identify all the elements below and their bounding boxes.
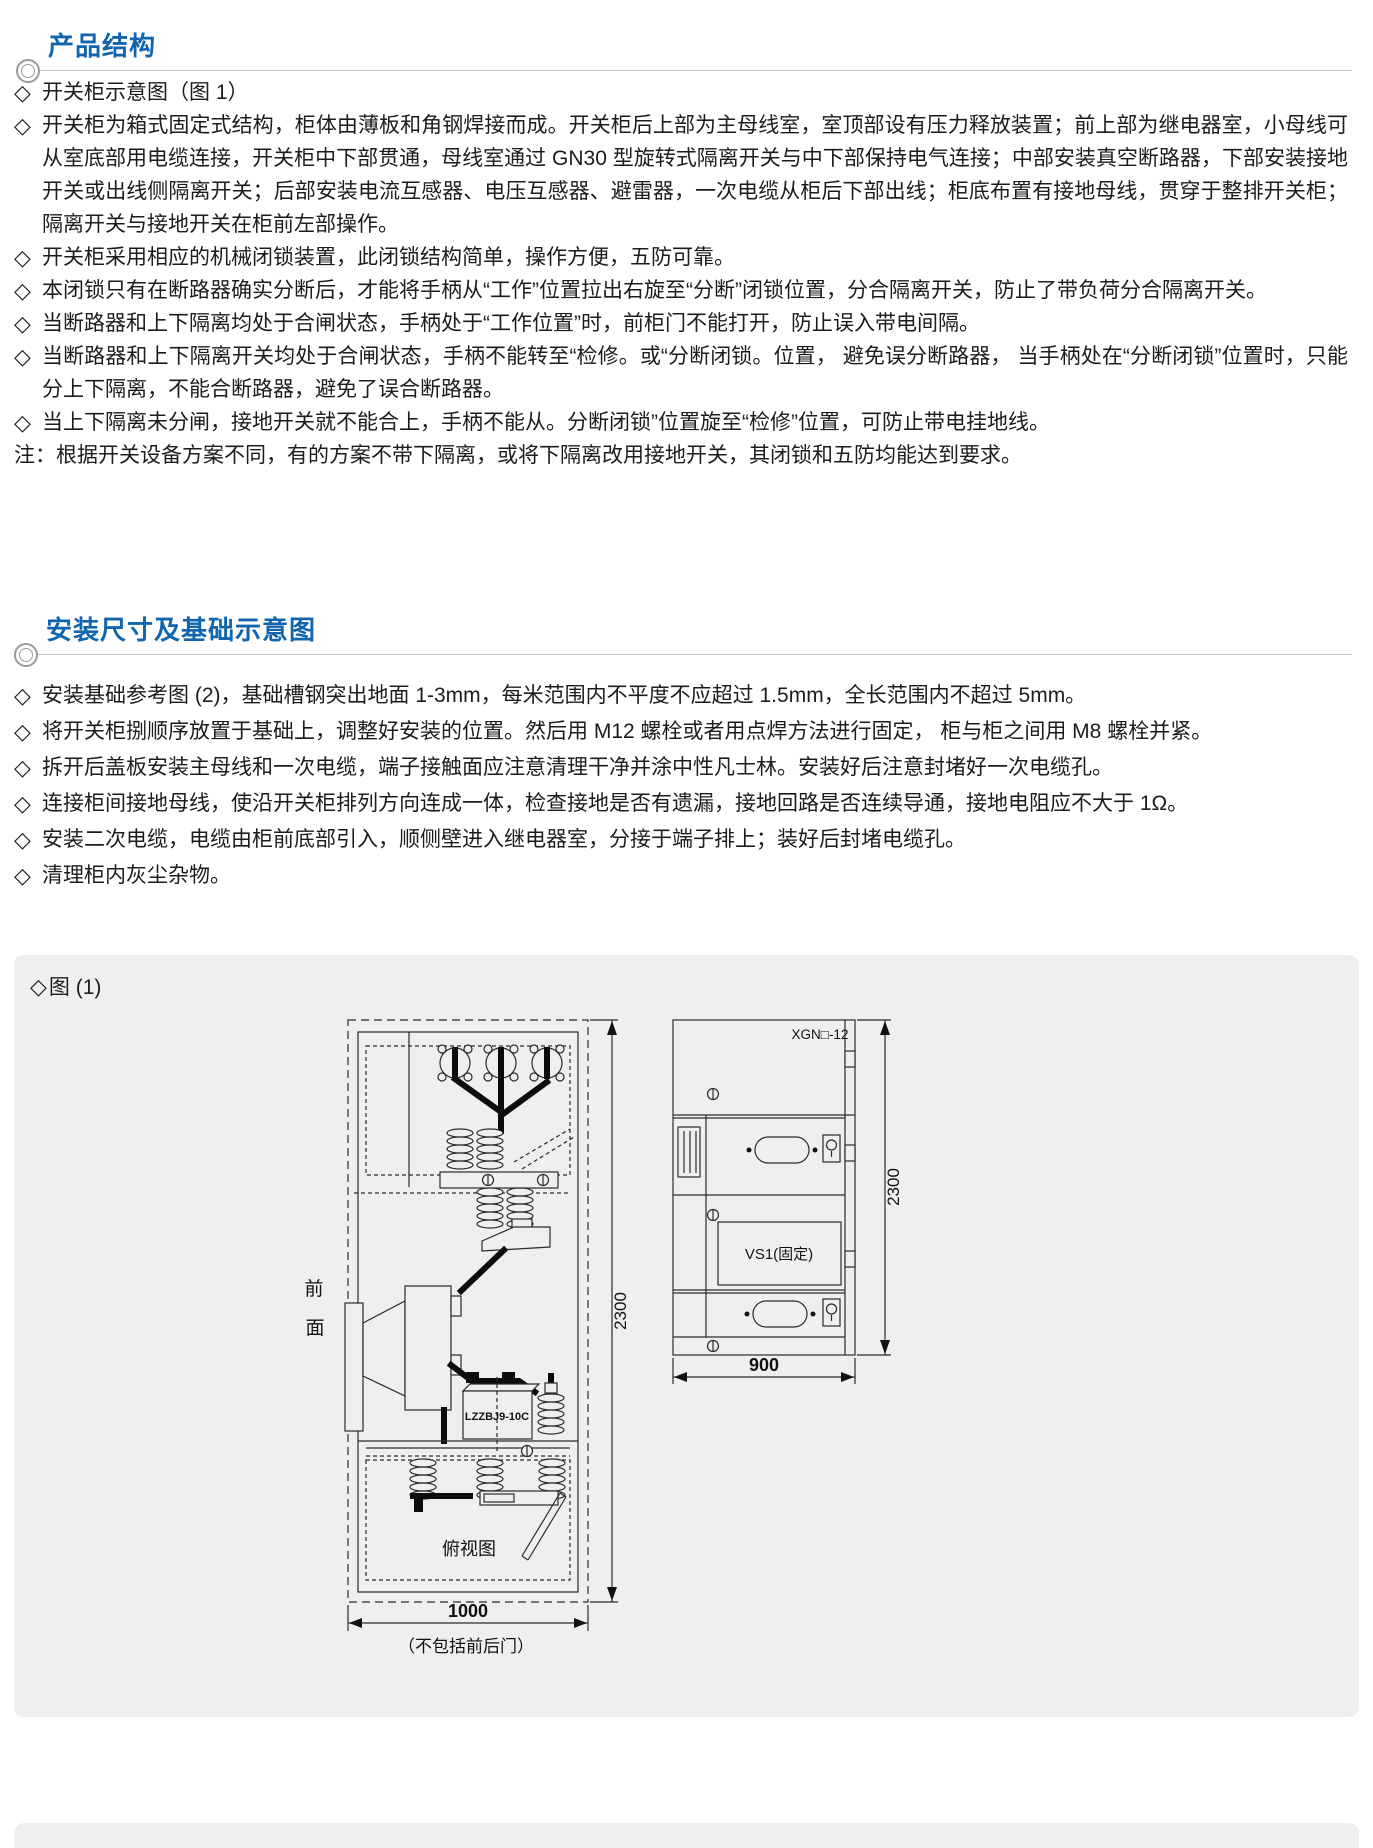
diamond-icon: ◇ [14, 822, 31, 858]
bullet-item: ◇安装基础参考图 (2)，基础槽钢突出地面 1-3mm，每米范围内不平度不应超过… [14, 678, 1348, 714]
ring-icon [14, 643, 38, 667]
bullet-item: ◇将开关柜捌顺序放置于基础上，调整好安装的位置。然后用 M12 螺栓或者用点焊方… [14, 714, 1348, 750]
diamond-icon: ◇ [14, 750, 31, 786]
busbar-bushings [438, 1045, 564, 1081]
diamond-icon: ◇ [14, 76, 31, 109]
bullet-text: 清理柜内灰尘杂物。 [42, 864, 231, 887]
section-title-installation: 安装尺寸及基础示意图 [46, 610, 316, 647]
bullet-text: 安装基础参考图 (2)，基础槽钢突出地面 1-3mm，每米范围内不平度不应超过 … [42, 684, 1086, 707]
dimension-1000: 1000 [448, 1601, 488, 1621]
diamond-icon: ◇ [14, 858, 31, 894]
bullet-item: ◇开关柜示意图（图 1） [14, 76, 1348, 109]
right-width-dimension: 900 [673, 1355, 855, 1384]
door-handle [745, 1301, 816, 1327]
screw-icon [708, 1210, 719, 1221]
screw-icon [708, 1341, 719, 1352]
door-handle [747, 1137, 818, 1163]
diamond-icon: ◇ [14, 340, 31, 373]
header-divider [40, 70, 1352, 71]
front-label-bottom: 面 [305, 1318, 324, 1339]
insulator-stack [447, 1129, 473, 1169]
manual-page: { "sections": [ { "title": "产品结构", "bull… [0, 0, 1373, 1848]
arrester [538, 1373, 564, 1434]
top-view-compartment: 俯视图 [366, 1459, 570, 1580]
bullet-item: ◇开关柜采用相应的机械闭锁装置，此闭锁结构简单，操作方便，五防可靠。 [14, 241, 1348, 274]
diamond-icon: ◇ [14, 241, 31, 274]
dimension-2300-left: 2300 [611, 1292, 630, 1330]
bullet-item: ◇连接柜间接地母线，使沿开关柜排列方向连成一体，检查接地是否有遗漏，接地回路是否… [14, 786, 1348, 822]
bullet-text: 开关柜为箱式固定式结构，柜体由薄板和角钢焊接而成。开关柜后上部为主母线室，室顶部… [42, 114, 1348, 236]
door-lock [823, 1299, 840, 1326]
bullet-item: ◇当断路器和上下隔离开关均处于合闸状态，手柄不能转至“检修。或“分断闭锁。位置，… [14, 340, 1348, 406]
diamond-icon: ◇ [14, 786, 31, 822]
diamond-icon: ◇ [14, 714, 31, 750]
bullet-text: 安装二次电缆，电缆由柜前底部引入，顺侧壁进入继电器室，分接于端子排上；装好后封堵… [42, 828, 966, 851]
door-lock [823, 1135, 840, 1162]
header-divider [38, 654, 1352, 655]
note-line: 注：根据开关设备方案不同，有的方案不带下隔离，或将下隔离改用接地开关，其闭锁和五… [14, 439, 1348, 472]
left-height-dimension: 2300 [590, 1020, 630, 1602]
bullet-item: ◇拆开后盖板安装主母线和一次电缆，端子接触面应注意清理干净并涂中性凡士林。安装好… [14, 750, 1348, 786]
bullet-text: 开关柜采用相应的机械闭锁装置，此闭锁结构简单，操作方便，五防可靠。 [42, 246, 735, 269]
left-width-dimension: 1000 （不包括前后门） [348, 1601, 588, 1656]
figure-1-drawing: LZZBJ9-10C [14, 955, 1359, 1717]
ct-model-label: LZZBJ9-10C [465, 1411, 529, 1423]
bullet-item: ◇本闭锁只有在断路器确实分断后，才能将手柄从“工作”位置拉出右旋至“分断”闭锁位… [14, 274, 1348, 307]
diamond-icon: ◇ [14, 678, 31, 714]
front-label-top: 前 [304, 1278, 323, 1300]
bullet-text: 连接柜间接地母线，使沿开关柜排列方向连成一体，检查接地是否有遗漏，接地回路是否连… [42, 792, 1188, 815]
insulator-stack [477, 1129, 503, 1169]
bullet-item: ◇安装二次电缆，电缆由柜前底部引入，顺侧壁进入继电器室，分接于端子排上；装好后封… [14, 822, 1348, 858]
left-diagram-side-section: LZZBJ9-10C [304, 1020, 630, 1656]
bullet-text: 本闭锁只有在断路器确实分断后，才能将手柄从“工作”位置拉出右旋至“分断”闭锁位置… [42, 279, 1267, 302]
diamond-icon: ◇ [14, 274, 31, 307]
bullet-item: ◇开关柜为箱式固定式结构，柜体由薄板和角钢焊接而成。开关柜后上部为主母线室，室顶… [14, 109, 1348, 241]
bullet-text: 开关柜示意图（图 1） [42, 81, 249, 104]
bullet-text: 当断路器和上下隔离开关均处于合闸状态，手柄不能转至“检修。或“分断闭锁。位置， … [42, 345, 1348, 401]
bullet-text: 当上下隔离未分闸，接地开关就不能合上，手柄不能从。分断闭锁”位置旋至“检修”位置… [42, 411, 1050, 434]
bullet-item: ◇当上下隔离未分闸，接地开关就不能合上，手柄不能从。分断闭锁”位置旋至“检修”位… [14, 406, 1348, 439]
diamond-icon: ◇ [14, 307, 31, 340]
bullet-item: ◇清理柜内灰尘杂物。 [14, 858, 1348, 894]
vs1-label: VS1(固定) [745, 1246, 813, 1263]
next-panel-edge [14, 1823, 1359, 1848]
dimension-note: （不包括前后门） [398, 1637, 534, 1656]
insulator-stack [477, 1188, 503, 1228]
installation-list: ◇安装基础参考图 (2)，基础槽钢突出地面 1-3mm，每米范围内不平度不应超过… [14, 678, 1348, 894]
louver-vent [678, 1127, 700, 1177]
figure-1-panel: ◇图 (1) [14, 955, 1359, 1717]
right-height-dimension: 2300 [857, 1020, 903, 1355]
vs1-breaker-box: VS1(固定) [718, 1222, 841, 1285]
bullet-text: 将开关柜捌顺序放置于基础上，调整好安装的位置。然后用 M12 螺栓或者用点焊方法… [42, 720, 1212, 743]
dimension-900: 900 [749, 1355, 779, 1375]
bullet-text: 当断路器和上下隔离均处于合闸状态，手柄处于“工作位置”时，前柜门不能打开，防止误… [42, 312, 980, 335]
diamond-icon: ◇ [14, 109, 31, 142]
bullet-item: ◇当断路器和上下隔离均处于合闸状态，手柄处于“工作位置”时，前柜门不能打开，防止… [14, 307, 1348, 340]
dimension-2300-right: 2300 [884, 1168, 903, 1206]
product-structure-list: ◇开关柜示意图（图 1） ◇开关柜为箱式固定式结构，柜体由薄板和角钢焊接而成。开… [14, 76, 1348, 472]
top-view-label: 俯视图 [442, 1539, 496, 1559]
section-title-product-structure: 产品结构 [48, 26, 156, 63]
diamond-icon: ◇ [14, 406, 31, 439]
right-diagram-front-view: XGN□-12 [673, 1020, 903, 1384]
cabinet-model-label: XGN□-12 [792, 1027, 849, 1042]
screw-icon [708, 1089, 719, 1100]
bullet-text: 拆开后盖板安装主母线和一次电缆，端子接触面应注意清理干净并涂中性凡士林。安装好后… [42, 756, 1113, 779]
